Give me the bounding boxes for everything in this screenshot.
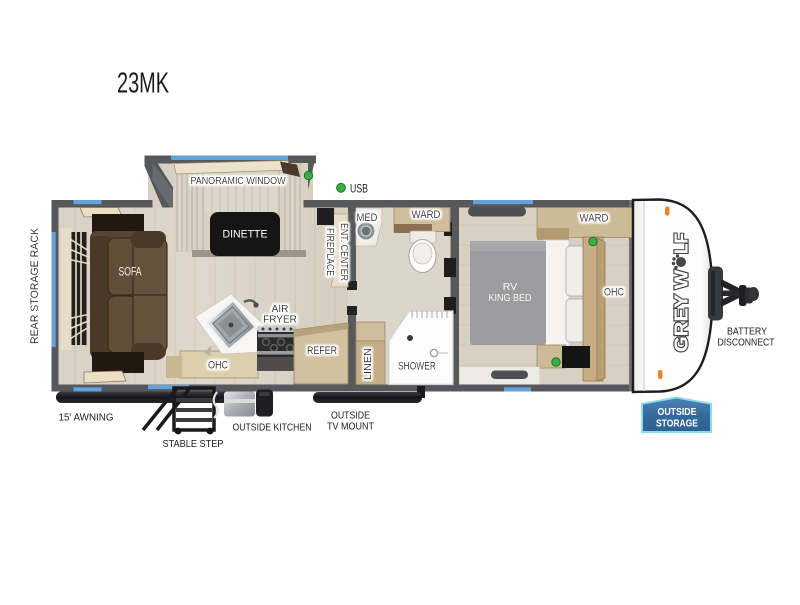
svg-text:KING BED: KING BED <box>489 292 532 304</box>
svg-text:REFER: REFER <box>307 345 337 357</box>
svg-text:WARD: WARD <box>580 213 609 225</box>
svg-text:DISCONNECT: DISCONNECT <box>718 338 775 349</box>
svg-text:SHOWER: SHOWER <box>398 361 436 373</box>
svg-text:REAR STORAGE RACK: REAR STORAGE RACK <box>29 227 41 344</box>
svg-text:BATTERY: BATTERY <box>727 327 767 338</box>
svg-text:OHC: OHC <box>604 287 624 299</box>
svg-text:FRYER: FRYER <box>263 315 297 326</box>
svg-text:OHC: OHC <box>208 360 228 372</box>
svg-text:PANORAMIC WINDOW: PANORAMIC WINDOW <box>191 175 286 187</box>
svg-text:DINETTE: DINETTE <box>223 229 268 241</box>
svg-text:LINEN: LINEN <box>363 348 374 380</box>
svg-text:15' AWNING: 15' AWNING <box>59 412 114 424</box>
svg-text:LF: LF <box>671 233 692 254</box>
svg-text:AIR: AIR <box>272 304 289 315</box>
svg-text:TV MOUNT: TV MOUNT <box>327 421 375 433</box>
svg-text:FIREPLACE: FIREPLACE <box>324 228 335 276</box>
svg-text:OUTSIDE: OUTSIDE <box>658 407 697 418</box>
svg-text:ENT. CENTER: ENT. CENTER <box>338 223 349 281</box>
svg-text:OUTSIDE KITCHEN: OUTSIDE KITCHEN <box>233 422 312 434</box>
svg-text:23MK: 23MK <box>117 68 169 100</box>
svg-text:STORAGE: STORAGE <box>656 419 698 430</box>
svg-text:SOFA: SOFA <box>119 267 142 279</box>
svg-text:USB: USB <box>350 181 368 195</box>
svg-text:STABLE STEP: STABLE STEP <box>163 438 224 450</box>
svg-text:GREY W: GREY W <box>671 269 692 352</box>
svg-text:WARD: WARD <box>412 209 441 221</box>
svg-text:MED: MED <box>357 212 378 224</box>
